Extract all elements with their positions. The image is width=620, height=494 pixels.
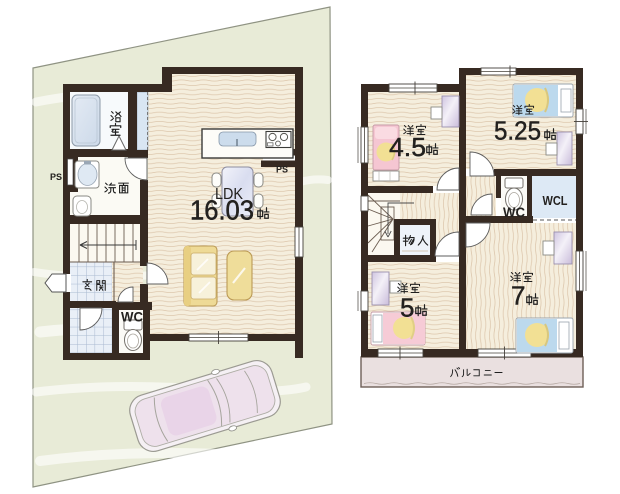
svg-text:4.5: 4.5 xyxy=(389,132,426,162)
svg-text:5.25: 5.25 xyxy=(494,116,541,146)
svg-text:WCL: WCL xyxy=(543,194,568,208)
svg-text:WC: WC xyxy=(503,204,525,220)
svg-text:PS: PS xyxy=(276,165,288,176)
svg-text:7: 7 xyxy=(511,281,525,311)
svg-text:WC: WC xyxy=(121,309,143,325)
svg-text:PS: PS xyxy=(50,172,62,183)
svg-text:16.03: 16.03 xyxy=(190,195,254,226)
svg-text:5: 5 xyxy=(400,293,414,323)
